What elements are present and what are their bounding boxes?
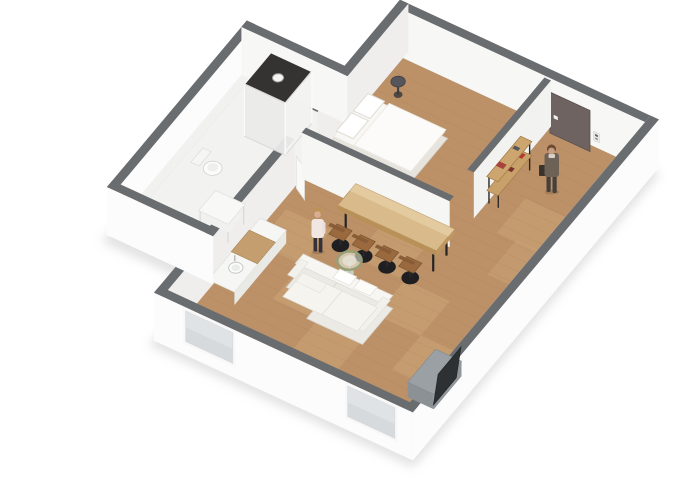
floorplan-stage (0, 0, 700, 500)
floorplan-3d-view (0, 0, 700, 500)
